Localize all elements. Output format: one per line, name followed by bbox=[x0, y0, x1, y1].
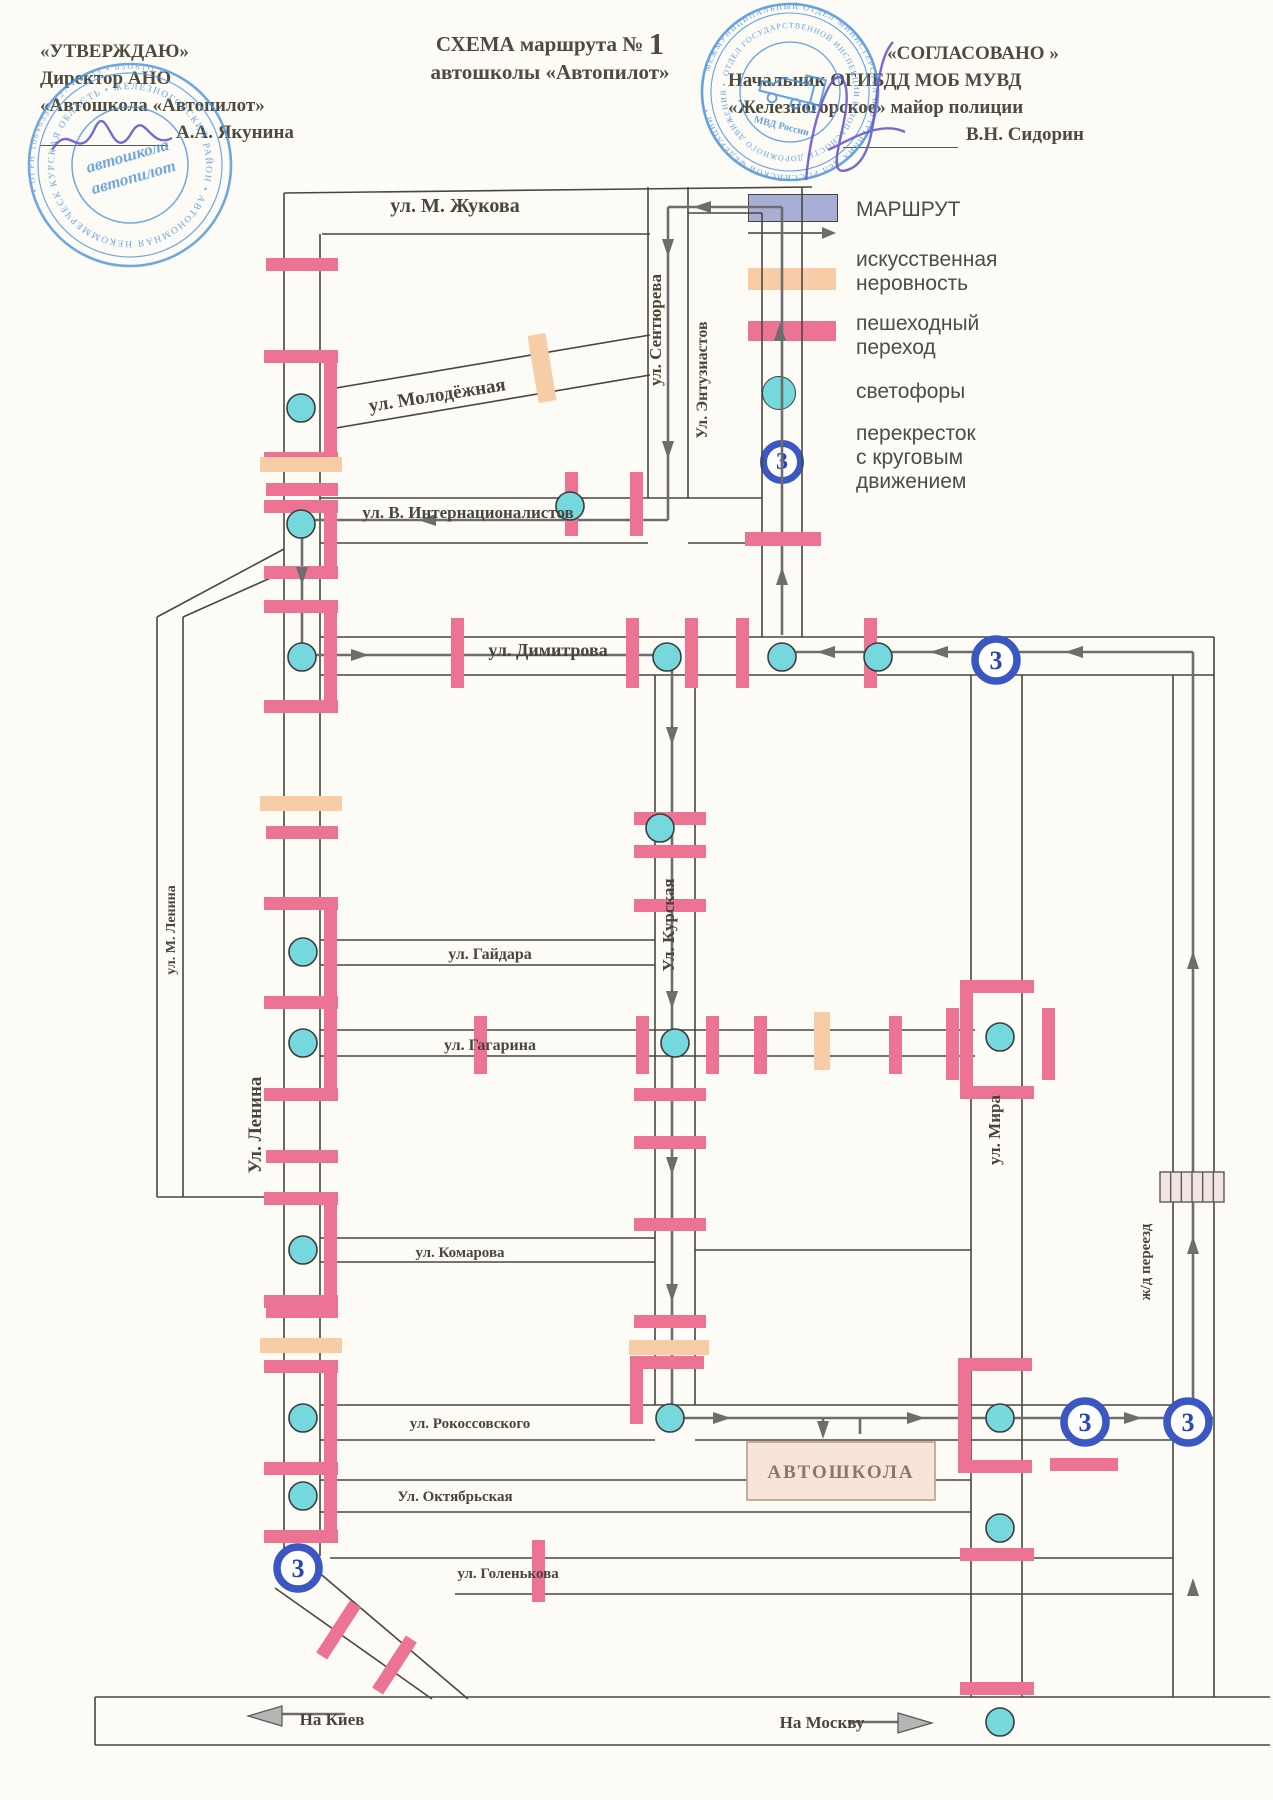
route-arrow-icon bbox=[817, 646, 835, 658]
street-label: ул. Рокоссовского bbox=[410, 1416, 531, 1432]
route-map: 3333АВТОШКОЛАул. М. Жуковаул. Молодёжная… bbox=[0, 0, 1273, 1800]
speed-bump bbox=[260, 1338, 342, 1353]
traffic-light-icon bbox=[768, 643, 796, 671]
street-label: ул. В. Интернационалистов bbox=[362, 503, 573, 522]
pedestrian-crossing bbox=[685, 618, 698, 688]
speed-bump bbox=[260, 796, 342, 811]
pedestrian-crossing bbox=[372, 1635, 417, 1694]
street-label: Ул. Курская bbox=[659, 878, 678, 971]
route-arrow-icon bbox=[1124, 1412, 1142, 1424]
traffic-light-icon bbox=[289, 1404, 317, 1432]
traffic-light-icon bbox=[287, 510, 315, 538]
roundabout-number: 3 bbox=[990, 646, 1003, 675]
route-arrow-icon bbox=[907, 1412, 925, 1424]
traffic-light-icon bbox=[986, 1514, 1014, 1542]
traffic-light-icon bbox=[661, 1029, 689, 1057]
highway-arrow-icon bbox=[248, 1706, 282, 1726]
highway-arrow-icon bbox=[898, 1713, 932, 1733]
route-arrow-icon bbox=[693, 201, 711, 213]
route-arrow-icon bbox=[817, 1421, 829, 1439]
pedestrian-crossing bbox=[960, 980, 973, 1099]
pedestrian-crossing bbox=[706, 1016, 719, 1074]
pedestrian-crossing bbox=[630, 1356, 704, 1369]
road-line bbox=[284, 187, 812, 193]
route-arrow-icon bbox=[1187, 1578, 1199, 1596]
street-label: ул. М. Жукова bbox=[390, 195, 519, 217]
pedestrian-crossing bbox=[316, 1600, 361, 1659]
speed-bump bbox=[814, 1012, 830, 1070]
traffic-light-icon bbox=[864, 643, 892, 671]
pedestrian-crossing bbox=[630, 472, 643, 536]
street-label: Ул. Октябрьская bbox=[397, 1489, 512, 1505]
route-arrow-icon bbox=[713, 1412, 731, 1424]
speed-bump bbox=[629, 1340, 709, 1355]
street-label: Ул. Ленина bbox=[245, 1076, 266, 1173]
pedestrian-crossing bbox=[946, 1008, 959, 1080]
route-arrow-icon bbox=[1187, 951, 1199, 969]
street-label: ул. Гагарина bbox=[444, 1037, 536, 1054]
street-label: Ул. Энтузиастов bbox=[694, 321, 711, 439]
pedestrian-crossing bbox=[324, 1360, 337, 1475]
traffic-light-icon bbox=[653, 643, 681, 671]
pedestrian-crossing bbox=[634, 845, 706, 858]
pedestrian-crossing bbox=[324, 500, 337, 579]
pedestrian-crossing bbox=[736, 618, 749, 688]
route-arrow-icon bbox=[666, 1284, 678, 1302]
traffic-light-icon bbox=[986, 1708, 1014, 1736]
driving-school-label: АВТОШКОЛА bbox=[767, 1462, 914, 1483]
pedestrian-crossing bbox=[324, 897, 337, 1009]
street-label: ул. Гайдара bbox=[448, 946, 532, 963]
speed-bump bbox=[528, 333, 557, 403]
route-arrow-icon bbox=[774, 323, 786, 341]
pedestrian-crossing bbox=[960, 1682, 1034, 1695]
roundabout-number: 3 bbox=[1079, 1408, 1092, 1437]
street-label: ул. Димитрова bbox=[488, 640, 607, 660]
speed-bump bbox=[260, 457, 342, 472]
street-label: ул. Мира bbox=[985, 1095, 1004, 1165]
pedestrian-crossing bbox=[324, 350, 337, 465]
pedestrian-crossing bbox=[1042, 1008, 1055, 1080]
street-label: ул. М. Ленина bbox=[164, 885, 179, 974]
roundabout-number: 3 bbox=[292, 1554, 305, 1583]
street-label: На Москву bbox=[780, 1713, 865, 1732]
pedestrian-crossing bbox=[451, 618, 464, 688]
pedestrian-crossing bbox=[324, 996, 337, 1101]
traffic-light-icon bbox=[986, 1023, 1014, 1051]
traffic-light-icon bbox=[289, 1029, 317, 1057]
pedestrian-crossing bbox=[958, 1358, 971, 1473]
pedestrian-crossing bbox=[266, 1150, 338, 1163]
pedestrian-crossing bbox=[754, 1016, 767, 1074]
pedestrian-crossing bbox=[634, 1088, 706, 1101]
pedestrian-crossing bbox=[266, 826, 338, 839]
route-arrow-icon bbox=[776, 567, 788, 585]
route-arrow-icon bbox=[930, 646, 948, 658]
street-label: ул. Сентюрева bbox=[646, 274, 665, 386]
traffic-light-icon bbox=[289, 1482, 317, 1510]
route-arrow-icon bbox=[1065, 646, 1083, 658]
traffic-light-icon bbox=[646, 814, 674, 842]
street-label: На Киев bbox=[300, 1710, 365, 1729]
street-label: ул. Голенькова bbox=[457, 1566, 559, 1582]
route-arrow-icon bbox=[662, 441, 674, 459]
traffic-light-icon bbox=[288, 643, 316, 671]
route-arrow-icon bbox=[662, 239, 674, 257]
pedestrian-crossing bbox=[1050, 1458, 1118, 1471]
route-arrow-icon bbox=[666, 991, 678, 1009]
route-arrow-icon bbox=[666, 727, 678, 745]
pedestrian-crossing bbox=[636, 1016, 649, 1074]
pedestrian-crossing bbox=[266, 483, 338, 496]
traffic-light-icon bbox=[289, 938, 317, 966]
pedestrian-crossing bbox=[324, 1192, 337, 1308]
pedestrian-crossing bbox=[626, 618, 639, 688]
pedestrian-crossing bbox=[634, 1136, 706, 1149]
route-arrow-icon bbox=[1187, 1236, 1199, 1254]
route-arrow-icon bbox=[666, 1157, 678, 1175]
pedestrian-crossing bbox=[634, 1218, 706, 1231]
pedestrian-crossing bbox=[960, 1548, 1034, 1561]
traffic-light-icon bbox=[289, 1236, 317, 1264]
traffic-light-icon bbox=[986, 1404, 1014, 1432]
pedestrian-crossing bbox=[889, 1016, 902, 1074]
pedestrian-crossing bbox=[634, 1315, 706, 1328]
route-arrow-icon bbox=[351, 649, 369, 661]
traffic-light-icon bbox=[656, 1404, 684, 1432]
pedestrian-crossing bbox=[324, 1462, 337, 1543]
roundabout-number: 3 bbox=[1182, 1408, 1195, 1437]
pedestrian-crossing bbox=[630, 1369, 643, 1424]
street-label: ул. Комарова bbox=[415, 1245, 505, 1261]
street-label: ж/д переезд bbox=[1138, 1223, 1154, 1300]
pedestrian-crossing bbox=[745, 532, 821, 546]
traffic-light-icon bbox=[287, 394, 315, 422]
pedestrian-crossing bbox=[266, 258, 338, 271]
scanned-route-scheme-page: { "header": { "approve": {"line1": "«УТВ… bbox=[0, 0, 1273, 1800]
pedestrian-crossing bbox=[324, 600, 337, 713]
